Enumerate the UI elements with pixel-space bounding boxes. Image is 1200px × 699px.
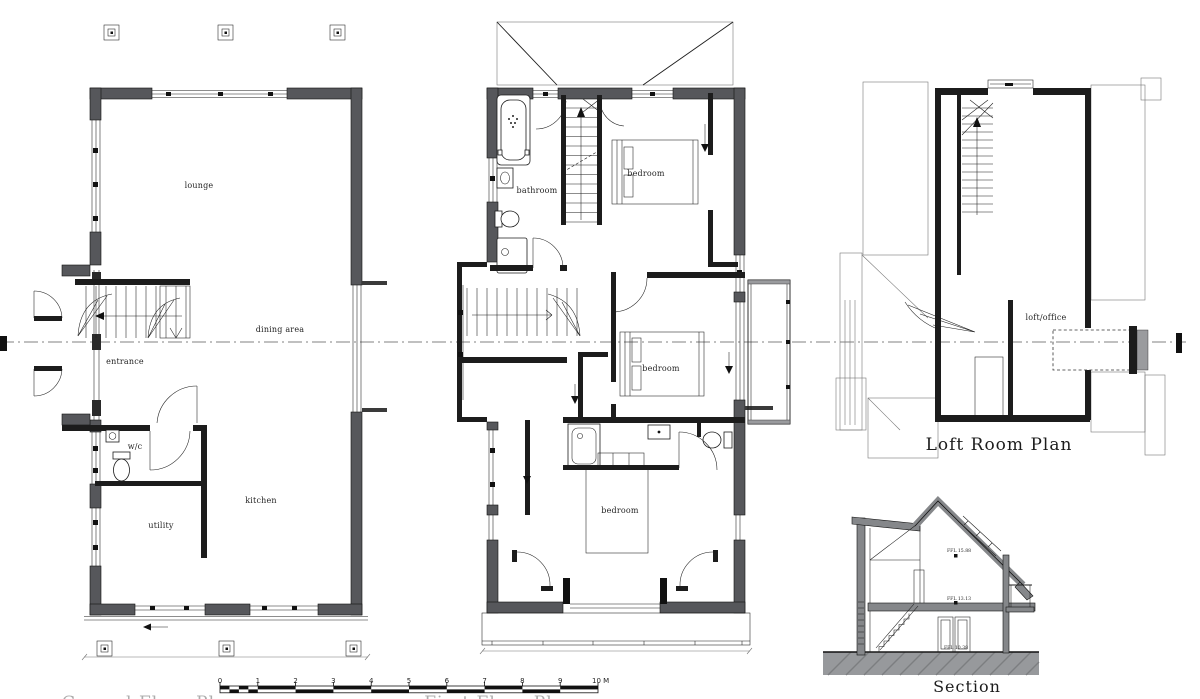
scale-tick-8: 8 [520,677,524,685]
room-label-kitchen: kitchen [245,496,277,505]
wc-fixtures [106,430,130,481]
scale-tick-9: 9 [558,677,562,685]
window [988,80,1033,88]
first-floor-plan-title-clipped: First Floor Plan [424,693,576,699]
roof-planes [836,78,1165,458]
shower-bath-icon [568,424,600,468]
window [92,120,100,232]
column-marker [346,641,361,656]
level-label-ground-floor: FFL 10.38 [944,645,968,651]
window [489,515,493,540]
column-markers [97,25,361,656]
bathtub-icon [497,95,530,165]
deck [480,613,752,654]
room-label-lounge: lounge [185,181,214,190]
entrance-double-door-swing [34,291,62,396]
room-label-loft-office: loft/office [1026,313,1067,322]
loft-room-plan: loft/office Loft Room Plan [836,78,1165,458]
scale-tick-0: 0 [218,677,222,685]
direction-arrow [701,144,709,152]
direction-arrow [571,396,579,404]
column-marker [330,25,345,40]
scale-bar-segments [220,686,598,693]
exit-arrow [143,624,168,631]
scale-end-label: 10 M [592,677,609,685]
interior-partitions [62,386,207,558]
room-label-bathroom: bathroom [517,186,558,195]
toilet-icon [113,452,130,481]
door-swing [533,238,563,268]
loft-staircase [905,95,993,332]
window [135,606,205,610]
window [92,432,100,484]
level-label-first-floor: FFL 13.13 [947,596,971,602]
direction-arrow [725,366,733,374]
stair-direction-arrow [577,107,585,117]
window [152,91,287,98]
section-title: Section [933,677,1001,696]
post [660,578,667,604]
ground-floor-plan-title-clipped: Ground Floor Plan [62,693,238,699]
glass-doors [570,604,660,608]
post [563,578,570,604]
canopy-stub [362,281,387,285]
toilet-icon [703,432,732,448]
window [736,515,740,540]
window [632,91,673,98]
scale-bar-tick-labels: 0 1 2 3 4 5 6 7 8 9 10 M [218,677,609,685]
canopy-stub [362,408,387,412]
scale-tick-6: 6 [445,677,450,685]
canopy-stub [745,406,773,410]
window [489,430,495,505]
window [92,508,100,566]
column-marker [97,641,112,656]
room-label-bedroom-3: bedroom [601,506,639,515]
balcony [748,280,790,424]
section-building [852,501,1035,655]
stair-arrival [467,288,580,336]
room-label-dining-area: dining area [256,325,305,334]
french-window [736,302,744,400]
column-marker [104,25,119,40]
room-label-bedroom-2: bedroom [642,364,680,373]
washbasin-icon [497,168,513,188]
door-swing [150,431,190,470]
first-floor-plan: bathroom bedroom bedroom bedroom [457,22,790,654]
room-label-wc: w/c [128,442,143,451]
cabinet-icon [648,425,670,439]
scale-tick-5: 5 [407,677,411,685]
door-swing [157,386,197,423]
door-swing [613,278,647,312]
ground-floor-plan: lounge dining area entrance w/c utility … [34,25,387,660]
scale-tick-3: 3 [331,677,335,685]
loft-plan-title: Loft Room Plan [926,435,1073,455]
scale-tick-2: 2 [293,677,297,685]
french-window [353,281,387,412]
stair-direction-arrow [95,312,104,320]
center-line-end-marker-left [0,336,7,351]
door-swing [517,552,550,586]
ground-floor-walls [34,88,387,620]
washbasin-icon [106,430,119,442]
door-swing [680,552,713,586]
stair-direction-arrow [973,117,981,127]
bedroom-2 [571,272,745,417]
column-marker [219,641,234,656]
stair-core [536,95,624,225]
window [489,158,497,202]
scale-tick-1: 1 [256,677,260,685]
staircase [75,279,190,338]
entrance-screen [92,270,101,420]
scale-bar: 0 1 2 3 4 5 6 7 8 9 10 M [218,677,609,693]
door-swing [600,101,624,126]
toilet-icon [495,211,519,227]
center-line-end-marker-right [1176,333,1182,353]
room-label-bedroom-1: bedroom [627,169,665,178]
roof-canopy-outline [497,22,733,85]
architectural-drawing-sheet: lounge dining area entrance w/c utility … [0,0,1200,699]
drawing-canvas: lounge dining area entrance w/c utility … [0,0,1200,699]
dimension-line [82,654,370,660]
scale-tick-4: 4 [369,677,374,685]
bedroom-1 [612,93,738,267]
dormer-outline [1053,326,1148,374]
level-label-loft: FFL 15.88 [947,548,971,554]
room-label-entrance: entrance [106,357,144,366]
scale-tick-7: 7 [482,677,486,685]
window [250,606,318,610]
column-marker [218,25,233,40]
bedroom-3 [460,357,718,591]
ground-hatch [823,652,1039,675]
room-label-utility: utility [148,521,173,530]
window [533,91,558,98]
section-drawing: FFL 15.88 FFL 13.13 FFL 10.38 Section [823,501,1039,696]
